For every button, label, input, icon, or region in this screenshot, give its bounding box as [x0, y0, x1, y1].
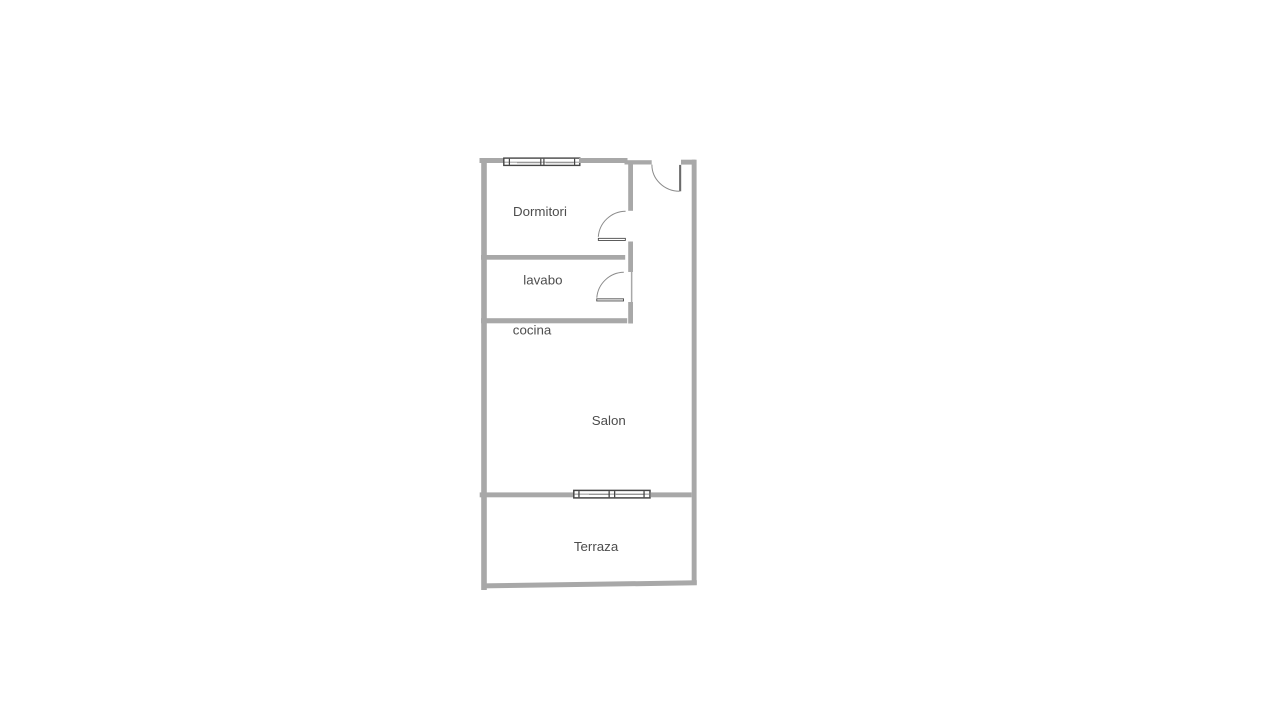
svg-text:Dormitori: Dormitori [513, 204, 567, 219]
svg-text:Salon: Salon [592, 413, 626, 428]
svg-text:cocina: cocina [513, 323, 552, 338]
svg-text:Terraza: Terraza [574, 539, 619, 554]
svg-text:lavabo: lavabo [523, 273, 562, 288]
